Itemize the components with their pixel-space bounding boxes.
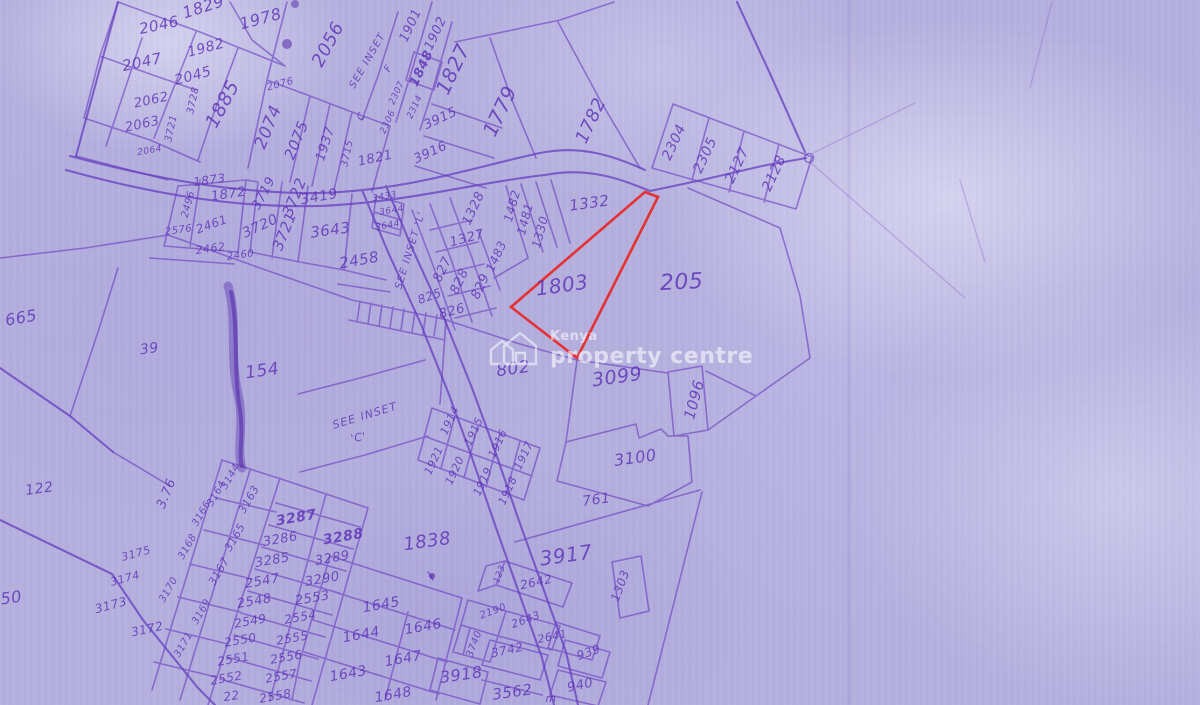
plot-label-1803: 1803: [534, 270, 590, 301]
plot-label-3644: 3644: [379, 204, 405, 218]
plot-label-205: 205: [659, 269, 704, 296]
plot-label-3165: 3165: [222, 521, 248, 553]
plot-label-3166: 3166: [190, 499, 213, 528]
plot-label-1643: 1643: [328, 663, 368, 685]
cadastral-map: 1829197820461982204720451885207620562062…: [0, 0, 1200, 705]
plot-label-3286: 3286: [262, 529, 299, 550]
plot-label-3742: 3742: [490, 640, 525, 660]
plot-label-2046: 2046: [137, 12, 180, 38]
plot-label-154: 154: [244, 359, 280, 384]
plot-label-1982: 1982: [186, 36, 226, 61]
plot-label-3099: 3099: [591, 363, 644, 392]
plot-label-2045: 2045: [173, 64, 213, 89]
plot-label-1838: 1838: [402, 528, 452, 555]
plot-label-940: 940: [566, 676, 595, 696]
plot-label-3287: 3287: [275, 507, 318, 530]
plot-label-3643: 3643: [309, 218, 351, 241]
plot-label-1332: 1332: [568, 191, 610, 214]
plot-label-2558: 2558: [258, 686, 292, 705]
plot-label-3170: 3170: [157, 575, 180, 604]
ink-blot: [429, 573, 435, 579]
plot-label-828: 828: [447, 266, 472, 296]
ink-blot: [282, 39, 292, 49]
plot-label-3289: 3289: [314, 548, 351, 569]
plot-label-1821: 1821: [357, 148, 394, 170]
plot-label-2314: 2314: [405, 94, 425, 121]
plot-label-123: 123: [492, 564, 508, 585]
plot-label-3433: 3433: [372, 190, 398, 204]
plot-label-1646: 1646: [403, 616, 443, 638]
plot-label-802: 802: [495, 357, 531, 382]
plot-label-1978: 1978: [237, 4, 283, 33]
plot-label-1827: 1827: [431, 40, 475, 98]
plot-label-2304: 2304: [659, 122, 689, 163]
plot-label-3-76: 3.76: [154, 477, 180, 511]
plot-label-2075: 2075: [280, 118, 312, 162]
plot-label-2551: 2551: [216, 649, 250, 668]
plot-label-1303: 1303: [608, 568, 632, 603]
plot-label-2056: 2056: [308, 18, 349, 70]
survey-linework: 1829197820461982204720451885207620562062…: [0, 0, 1200, 705]
plot-label-3917: 3917: [538, 540, 594, 571]
plot-label-3172: 3172: [130, 619, 165, 639]
plot-label-3171: 3171: [172, 630, 195, 659]
plot-label-2063: 2063: [124, 114, 161, 136]
plot-label-c: C: [355, 111, 368, 123]
plot-label-2305: 2305: [690, 135, 720, 176]
plot-label-2556: 2556: [269, 647, 303, 666]
plot-label-1917: 1917: [512, 439, 536, 472]
plot-label-see-inset: SEE INSET: [331, 400, 399, 432]
plot-label-1647: 1647: [383, 648, 423, 670]
plot-label-1872: 1872: [210, 185, 247, 205]
plot-label-2549: 2549: [233, 611, 267, 630]
plot-label-2550: 2550: [223, 630, 257, 649]
plot-label-3715: 3715: [339, 139, 355, 168]
plot-label-3288: 3288: [322, 526, 365, 549]
plot-label-m: m: [545, 692, 556, 705]
plot-label-665: 665: [4, 305, 39, 329]
plot-label-1096: 1096: [680, 378, 708, 421]
plot-label-3728: 3728: [185, 86, 201, 115]
plot-label-39: 39: [139, 340, 160, 358]
plot-labels-layer: 1829197820461982204720451885207620562062…: [0, 0, 790, 705]
plot-label-2047: 2047: [120, 49, 163, 75]
plot-label-1885: 1885: [201, 77, 244, 132]
plot-label--c-: 'C': [350, 430, 367, 445]
plot-label-825: 825: [416, 285, 444, 307]
plot-label-2460: 2460: [226, 248, 255, 263]
plot-label-2128: 2128: [759, 153, 789, 194]
plot-label-2461: 2461: [194, 212, 229, 236]
plot-label-1645: 1645: [361, 594, 401, 616]
plot-label-122: 122: [24, 479, 54, 499]
plot-label-50: 50: [0, 587, 23, 609]
plot-label-2062: 2062: [133, 90, 170, 112]
plot-label-3174: 3174: [109, 568, 141, 588]
plot-label-2643: 2643: [509, 608, 542, 630]
faded-lines: [810, 2, 1052, 298]
plot-label-3167: 3167: [206, 555, 232, 587]
plot-label-3916: 3916: [411, 139, 449, 167]
plot-label-2548: 2548: [236, 591, 273, 612]
plot-label-2074: 2074: [251, 102, 287, 151]
plot-label-1937: 1937: [313, 125, 338, 163]
plot-label-2554: 2554: [283, 607, 317, 626]
plot-label-1644: 1644: [341, 624, 381, 646]
plot-label-1648: 1648: [373, 684, 413, 705]
plot-label-3173: 3173: [93, 594, 128, 616]
plot-label-3285: 3285: [254, 550, 291, 571]
plot-label-2458: 2458: [338, 248, 381, 273]
plot-label-2076: 2076: [266, 76, 295, 94]
plot-label-3175: 3175: [120, 543, 152, 563]
plot-label-3290: 3290: [304, 569, 341, 590]
ink-blot: [291, 0, 299, 8]
plot-label-761: 761: [581, 490, 611, 510]
plot-label-826: 826: [437, 301, 466, 322]
plot-label-1328: 1328: [460, 189, 488, 227]
plot-label-3719: 3719: [249, 174, 279, 212]
plot-label-1829: 1829: [180, 0, 226, 22]
plot-label-1779: 1779: [478, 82, 522, 140]
plot-label-3163: 3163: [236, 483, 262, 515]
plot-label-22: 22: [222, 688, 240, 704]
plot-label-1782: 1782: [571, 95, 610, 147]
plot-label-2127: 2127: [722, 145, 752, 186]
plot-label-2064: 2064: [137, 144, 163, 158]
plot-label-f: F: [383, 63, 396, 74]
plot-label-2642: 2642: [519, 572, 554, 592]
plot-label-3644: 3644: [375, 219, 401, 233]
plot-label-3100: 3100: [613, 445, 658, 470]
plot-label-3721: 3721: [163, 114, 179, 143]
